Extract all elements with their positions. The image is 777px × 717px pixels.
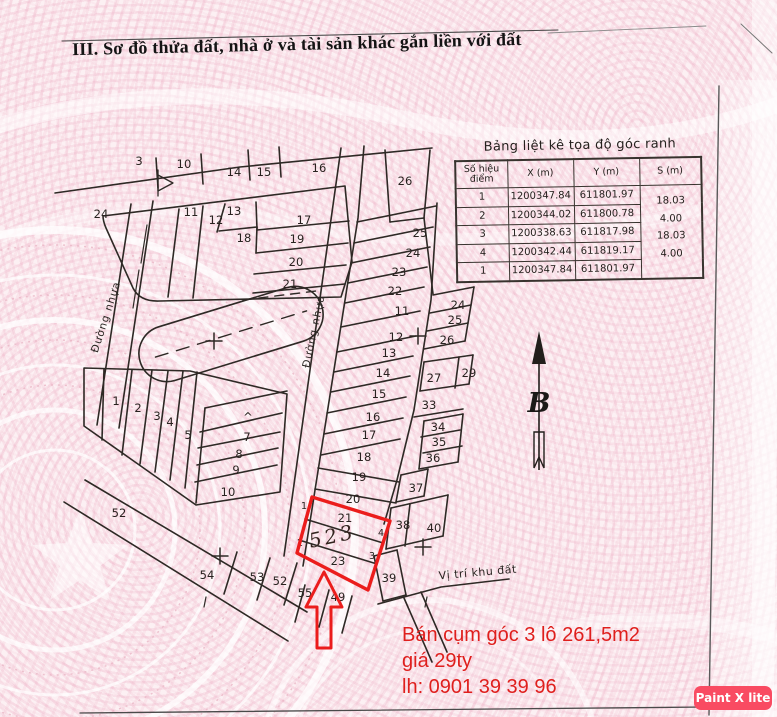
- plot-number-label: 39: [382, 571, 397, 585]
- plot-number-label: 19: [290, 232, 305, 246]
- cell-point: 4: [457, 243, 509, 262]
- plot-number-label: 26: [440, 333, 455, 347]
- plot-number-label: ^: [243, 410, 253, 424]
- plot-number-label: 19: [352, 470, 367, 484]
- handwritten-plot-number: 523: [307, 519, 358, 552]
- plot-number-label: 25: [448, 313, 463, 327]
- plot-number-label: 13: [227, 204, 242, 218]
- plot-number-label: 14: [376, 366, 391, 380]
- street-label-middle: Đường nhựa: [300, 294, 327, 369]
- plot-number-label: 4: [166, 415, 173, 429]
- cell-point: 2: [456, 206, 508, 225]
- document-bottom-border: [80, 707, 706, 713]
- corner-point-label: 1: [301, 501, 307, 512]
- plot-number-label: 26: [398, 174, 413, 188]
- plot-number-label: 7: [243, 430, 250, 444]
- north-arrow: B: [527, 331, 551, 470]
- cell-x: 1200338.63: [508, 224, 574, 244]
- street-label-left: Đường nhựa: [89, 280, 123, 354]
- cell-x: 1200347.84: [508, 187, 574, 207]
- cell-y: 611817.98: [574, 222, 640, 242]
- plot-number-label: 23: [331, 554, 346, 568]
- plot-number-label: 15: [257, 165, 272, 179]
- plot-number-label: 14: [227, 165, 242, 179]
- plot-number-label: 33: [422, 398, 437, 412]
- plot-number-label: 10: [221, 485, 236, 499]
- cell-point: 1: [456, 188, 508, 207]
- plot-number-label: 18: [237, 231, 252, 245]
- plot-number-label: 52: [112, 506, 127, 520]
- cell-y: 611801.97: [574, 185, 640, 205]
- scan-marks: [62, 24, 772, 715]
- cadastral-map: B Đường nhựa Đường nhựa Vị trí khu đất 3…: [0, 0, 777, 717]
- cell-y: 611801.97: [575, 259, 641, 279]
- plot-number-label: 8: [235, 447, 242, 461]
- plot-number-label: 10: [177, 157, 192, 171]
- plot-number-label: 18: [357, 450, 372, 464]
- plot-number-label: 52: [273, 574, 288, 588]
- cell-y: 611800.78: [574, 204, 640, 224]
- col-header-x: X (m): [507, 159, 573, 188]
- cell-point: 3: [456, 225, 508, 244]
- scanned-land-document: III. Sơ đồ thửa đất, nhà ở và tài sản kh…: [0, 0, 777, 717]
- sale-annotation-line1: Bán cụm góc 3 lô 261,5m2: [402, 622, 640, 648]
- coordinate-table-title: Bảng liệt kê tọa độ góc ranh: [454, 136, 706, 155]
- plot-number-label: 36: [426, 451, 441, 465]
- plot-number-label: 25: [413, 226, 428, 240]
- plot-number-label: 37: [409, 481, 424, 495]
- plot-number-label: 17: [297, 213, 312, 227]
- plot-number-label: 23: [392, 265, 407, 279]
- plot-number-label: 35: [432, 435, 447, 449]
- plot-number-label: 12: [389, 330, 404, 344]
- plot-number-label: 9: [232, 463, 239, 477]
- plot-number-label: 20: [346, 492, 361, 506]
- sale-annotation: Bán cụm góc 3 lô 261,5m2 giá 29ty lh: 09…: [402, 622, 640, 700]
- plot-number-label: 16: [366, 410, 381, 424]
- table-row: 1 1200347.84 611801.97 18.03 4.00 18.03 …: [456, 184, 702, 207]
- col-header-s: S (m): [639, 157, 701, 186]
- plot-number-label: 21: [283, 277, 298, 291]
- north-label: B: [527, 388, 551, 419]
- plot-number-label: 24: [94, 207, 109, 221]
- col-header-y: Y (m): [573, 158, 639, 187]
- corner-point-label: 3: [369, 551, 375, 562]
- sale-annotation-line2: giá 29ty: [402, 648, 640, 674]
- plot-number-label: 15: [372, 387, 387, 401]
- plot-number-label: 20: [289, 255, 304, 269]
- plot-number-label: 16: [312, 161, 327, 175]
- plot-number-label: 24: [451, 298, 466, 312]
- north-arrow-head: [532, 331, 546, 364]
- sale-annotation-line3: lh: 0901 39 39 96: [402, 674, 640, 700]
- cell-x: 1200347.84: [509, 261, 575, 281]
- plot-number-label: 54: [200, 568, 215, 582]
- col-header-point: Số hiệu điểm: [455, 160, 507, 188]
- document-right-border: [709, 86, 719, 715]
- cell-y: 611819.17: [575, 241, 641, 261]
- cell-point: 1: [457, 262, 509, 282]
- plot-number-label: 34: [431, 420, 446, 434]
- coordinate-table: Số hiệu điểm X (m) Y (m) S (m) 1 1200347…: [454, 156, 704, 283]
- plot-number-label: 13: [382, 346, 397, 360]
- plot-number-label: 22: [388, 284, 403, 298]
- plot-number-label: 3: [135, 154, 142, 168]
- cell-x: 1200344.02: [508, 205, 574, 225]
- plot-number-label: 40: [427, 521, 442, 535]
- cell-x: 1200342.44: [509, 242, 575, 262]
- plot-number-label: 24: [406, 246, 421, 260]
- plot-number-label: 27: [427, 371, 442, 385]
- plot-number-label: 3: [153, 409, 160, 423]
- plot-number-label: 5: [184, 428, 191, 442]
- plot-number-label: 2: [134, 401, 141, 415]
- coordinate-table-section: Bảng liệt kê tọa độ góc ranh Số hiệu điể…: [454, 136, 708, 283]
- plot-number-label: 11: [395, 304, 410, 318]
- plot-number-label: 1: [112, 394, 119, 408]
- plot-number-label: 29: [462, 366, 477, 380]
- paint-x-lite-watermark: Paint X lite: [694, 686, 772, 710]
- plot-number-label: 17: [362, 428, 377, 442]
- cell-s-column: 18.03 4.00 18.03 4.00: [640, 184, 704, 278]
- plot-number-label: 38: [396, 518, 411, 532]
- plot-number-label: 53: [250, 570, 265, 584]
- plot-number-label: 11: [184, 205, 199, 219]
- plot-number-label: 12: [209, 213, 224, 227]
